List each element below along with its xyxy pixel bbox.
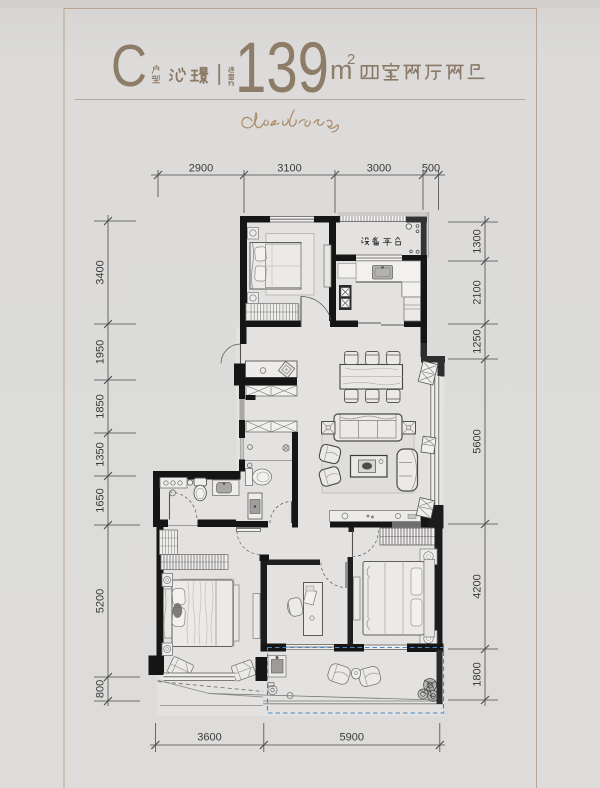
svg-text:500: 500: [422, 163, 440, 175]
svg-text:3400: 3400: [95, 260, 107, 284]
svg-text:2100: 2100: [472, 280, 484, 304]
svg-text:5600: 5600: [472, 429, 484, 453]
svg-text:3000: 3000: [367, 163, 391, 175]
svg-text:5200: 5200: [95, 589, 107, 613]
svg-text:1300: 1300: [472, 229, 484, 253]
svg-text:2: 2: [347, 51, 355, 68]
svg-text:1800: 1800: [472, 662, 484, 686]
svg-text:3600: 3600: [197, 732, 221, 744]
svg-text:1650: 1650: [95, 488, 107, 512]
svg-text:5900: 5900: [340, 732, 364, 744]
svg-text:139: 139: [235, 29, 329, 108]
svg-text:3100: 3100: [277, 163, 301, 175]
svg-text:1950: 1950: [95, 340, 107, 364]
svg-text:C: C: [111, 33, 147, 99]
svg-text:2900: 2900: [189, 163, 213, 175]
svg-text:1350: 1350: [95, 442, 107, 466]
svg-text:800: 800: [95, 680, 107, 698]
svg-text:4200: 4200: [472, 574, 484, 598]
svg-text:1250: 1250: [472, 329, 484, 353]
svg-text:1850: 1850: [95, 394, 107, 418]
